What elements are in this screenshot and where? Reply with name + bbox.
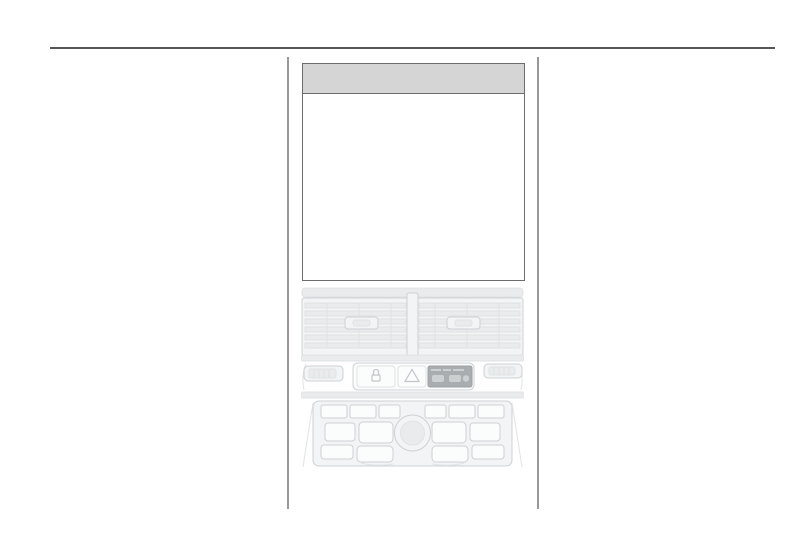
column-rule-left [287, 57, 289, 509]
dash-trim-band [301, 392, 524, 398]
page-top-rule [50, 47, 775, 49]
info-table-header [303, 64, 524, 94]
centre-console-illustration [301, 287, 524, 467]
info-table [302, 63, 525, 281]
right-thumbwheel-control [484, 364, 522, 378]
airbag-indicator-lamp-icon [463, 375, 469, 381]
vent-adjuster-left [345, 317, 378, 329]
vent-adjuster-right [447, 317, 480, 329]
panel-button [321, 445, 353, 459]
panel-button [478, 405, 504, 418]
panel-button [432, 422, 466, 443]
panel-button [357, 446, 393, 462]
display-text-line [453, 369, 464, 371]
panel-button [449, 405, 475, 418]
volume-knob [395, 415, 431, 451]
info-table-body [303, 94, 524, 279]
column-rule-right [537, 57, 539, 509]
vent-slat [419, 303, 520, 308]
display-text-line [443, 369, 451, 371]
panel-button [425, 405, 446, 418]
panel-button [321, 405, 347, 418]
vent-slat [419, 311, 520, 316]
panel-button [325, 423, 355, 441]
infotainment-panel [303, 401, 522, 467]
panel-button [379, 405, 400, 418]
display-text-line [431, 369, 441, 371]
air-vents [301, 293, 524, 361]
vent-slat [419, 343, 520, 348]
vent-divider [407, 293, 418, 357]
airbag-status-display [428, 366, 472, 387]
panel-button [432, 446, 468, 462]
panel-button [470, 423, 500, 441]
manual-page: { "page": { "kind": "vehicle-owners-manu… [0, 0, 808, 540]
centre-switch-panel [353, 363, 474, 390]
left-thumbwheel-control [304, 366, 343, 381]
switch-row [301, 363, 524, 398]
vent-slat [419, 335, 520, 340]
vent-bottom-edge [301, 355, 524, 361]
airbag-on-indicator-icon [432, 375, 444, 382]
panel-button [472, 445, 504, 459]
airbag-off-indicator-icon [449, 375, 461, 382]
panel-button [359, 422, 393, 443]
illustration-frame [301, 287, 524, 467]
panel-button [350, 405, 376, 418]
